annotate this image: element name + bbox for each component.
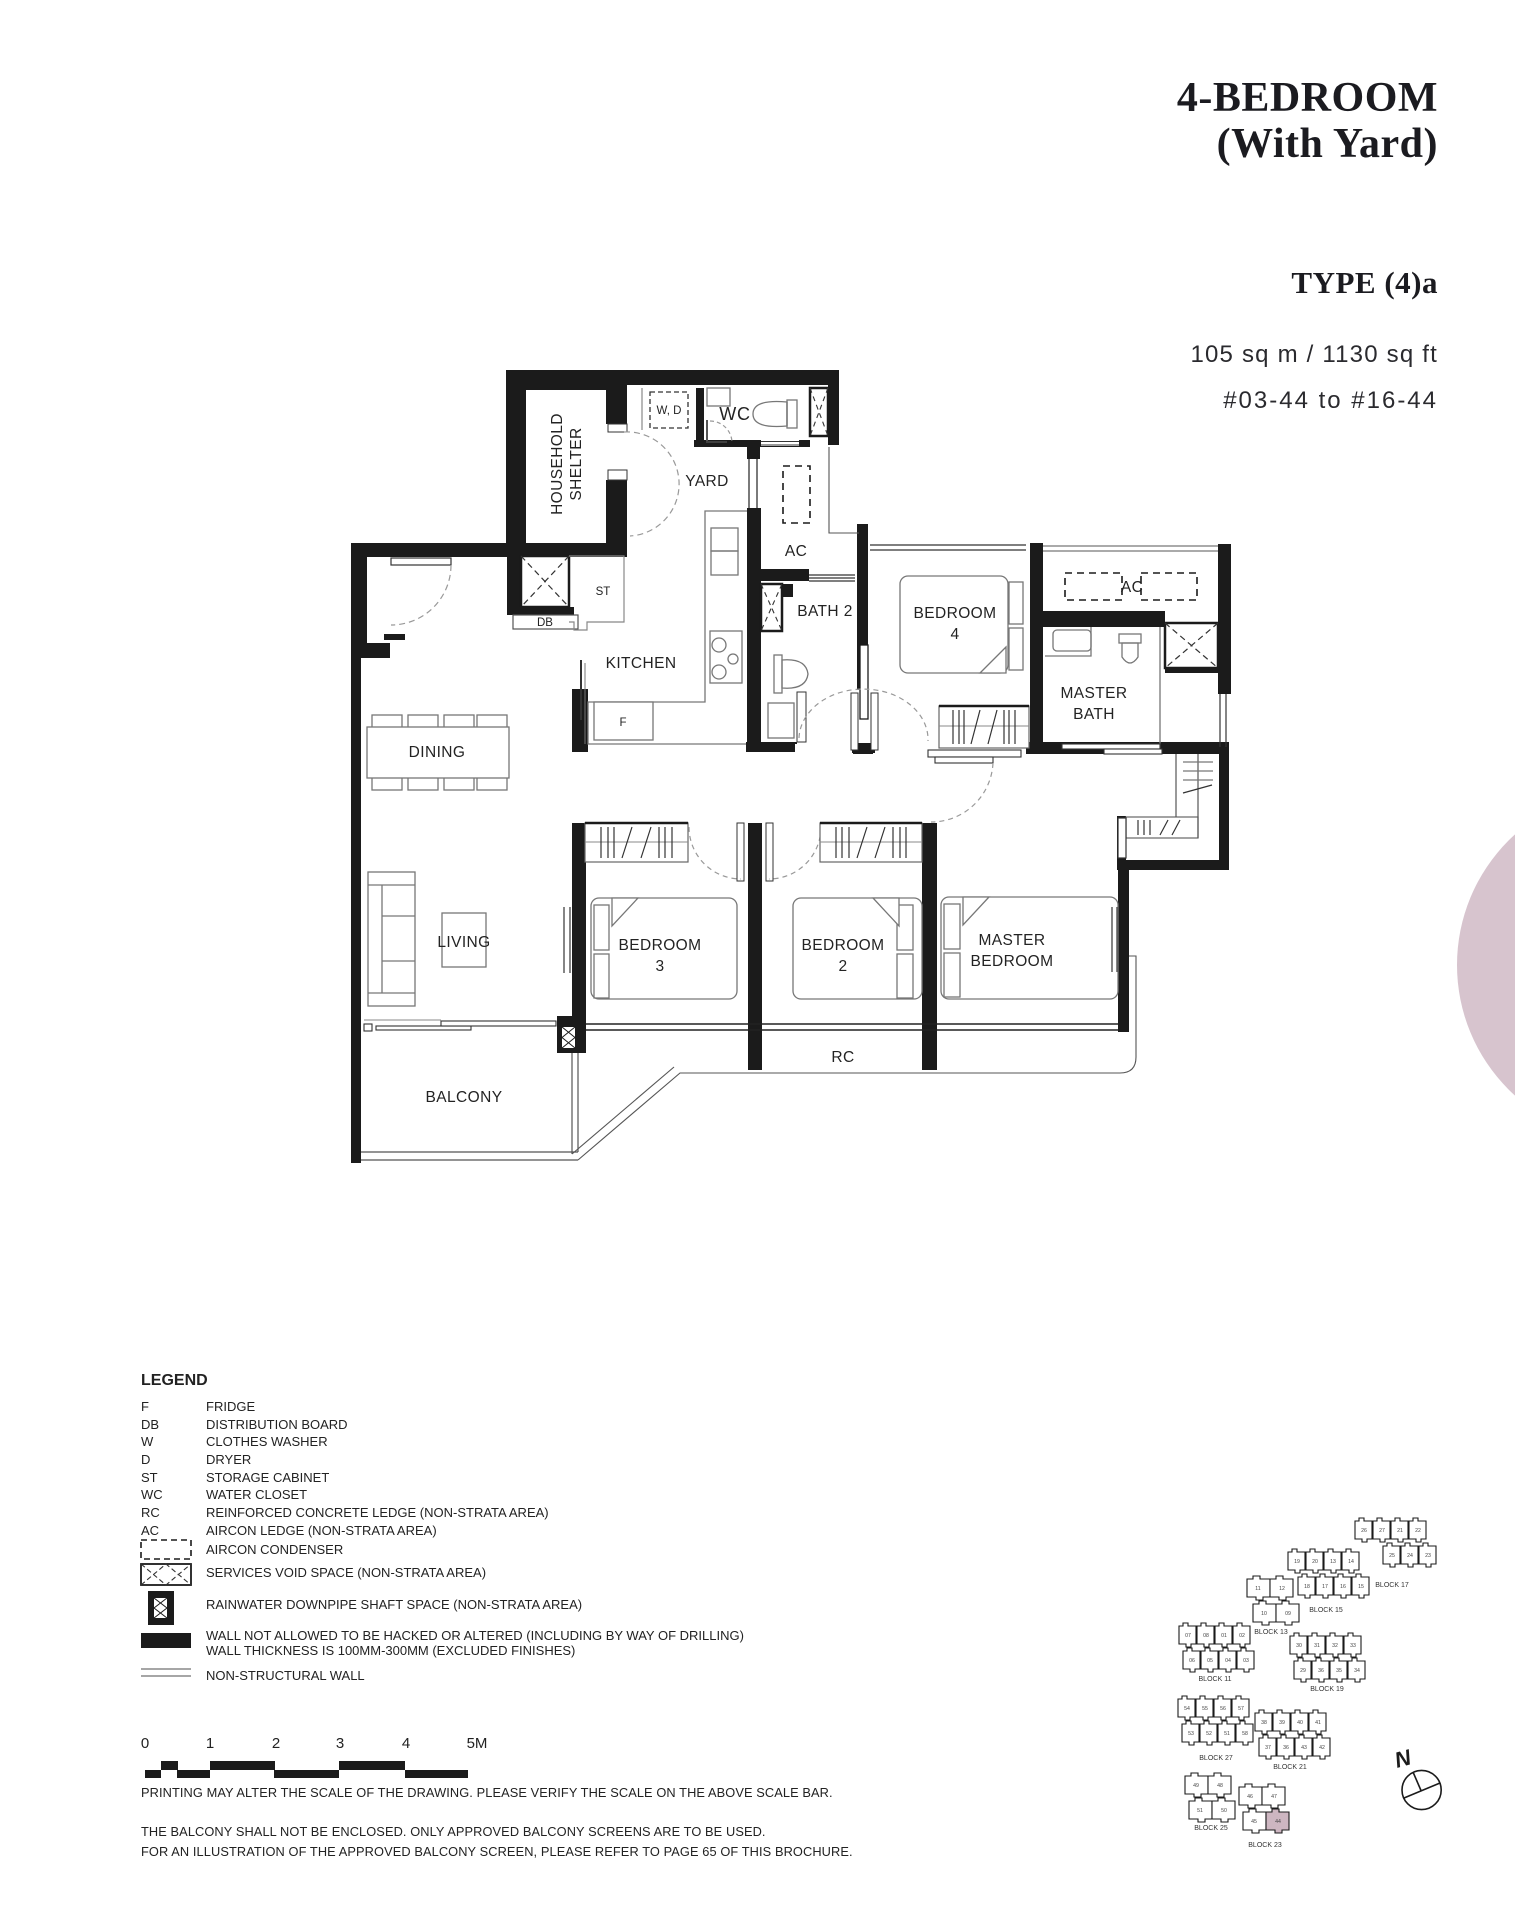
svg-text:BLOCK 21: BLOCK 21 — [1273, 1764, 1307, 1771]
svg-text:42: 42 — [1319, 1745, 1325, 1751]
svg-text:DB: DB — [537, 617, 553, 629]
svg-text:BLOCK 15: BLOCK 15 — [1309, 1607, 1343, 1614]
svg-text:58: 58 — [1242, 1731, 1248, 1737]
svg-text:14: 14 — [1348, 1559, 1354, 1565]
svg-text:MASTERBATH: MASTERBATH — [1061, 685, 1128, 723]
svg-text:BLOCK 27: BLOCK 27 — [1199, 1755, 1233, 1762]
svg-text:BEDROOM2: BEDROOM2 — [802, 937, 885, 975]
svg-text:WC: WC — [719, 404, 751, 424]
svg-text:F: F — [619, 717, 626, 729]
svg-text:31: 31 — [1314, 1643, 1320, 1649]
svg-text:36: 36 — [1318, 1668, 1324, 1674]
svg-text:RC: RC — [831, 1049, 854, 1066]
svg-text:17: 17 — [1322, 1584, 1328, 1590]
svg-text:05: 05 — [1207, 1658, 1213, 1664]
svg-text:4: 4 — [402, 1735, 410, 1752]
svg-text:15: 15 — [1358, 1584, 1364, 1590]
svg-text:36: 36 — [1283, 1745, 1289, 1751]
svg-text:BLOCK 11: BLOCK 11 — [1199, 1676, 1232, 1683]
svg-text:0: 0 — [141, 1735, 149, 1752]
svg-text:BATH 2: BATH 2 — [797, 603, 853, 620]
svg-text:3: 3 — [336, 1735, 344, 1752]
svg-text:YARD: YARD — [685, 473, 729, 490]
svg-text:49: 49 — [1193, 1783, 1199, 1789]
svg-text:56: 56 — [1220, 1706, 1226, 1712]
svg-text:AC: AC — [1121, 579, 1143, 596]
svg-text:AC: AC — [785, 543, 807, 560]
svg-text:20: 20 — [1312, 1559, 1318, 1565]
svg-text:30: 30 — [1296, 1643, 1302, 1649]
svg-text:27: 27 — [1379, 1528, 1385, 1534]
svg-text:52: 52 — [1206, 1731, 1212, 1737]
svg-text:LIVING: LIVING — [437, 934, 490, 951]
svg-text:BLOCK 23: BLOCK 23 — [1248, 1842, 1282, 1849]
svg-text:2: 2 — [272, 1735, 280, 1752]
svg-text:09: 09 — [1285, 1611, 1291, 1617]
svg-text:18: 18 — [1304, 1584, 1310, 1590]
svg-text:38: 38 — [1261, 1720, 1267, 1726]
svg-text:N: N — [1392, 1744, 1415, 1773]
svg-text:BEDROOM4: BEDROOM4 — [914, 605, 997, 643]
svg-text:BLOCK 25: BLOCK 25 — [1194, 1825, 1228, 1832]
svg-text:BLOCK 13: BLOCK 13 — [1254, 1629, 1288, 1636]
svg-text:43: 43 — [1301, 1745, 1307, 1751]
svg-text:23: 23 — [1425, 1553, 1431, 1559]
svg-text:40: 40 — [1297, 1720, 1303, 1726]
svg-text:57: 57 — [1238, 1706, 1244, 1712]
svg-text:26: 26 — [1361, 1528, 1367, 1534]
svg-text:19: 19 — [1294, 1559, 1300, 1565]
svg-text:13: 13 — [1330, 1559, 1336, 1565]
svg-text:21: 21 — [1397, 1528, 1403, 1534]
svg-text:22: 22 — [1415, 1528, 1421, 1534]
svg-text:24: 24 — [1407, 1553, 1413, 1559]
svg-text:02: 02 — [1239, 1633, 1245, 1639]
svg-text:04: 04 — [1225, 1658, 1231, 1664]
svg-text:06: 06 — [1189, 1658, 1195, 1664]
svg-text:08: 08 — [1203, 1633, 1209, 1639]
svg-text:48: 48 — [1217, 1783, 1223, 1789]
svg-text:53: 53 — [1188, 1731, 1194, 1737]
svg-text:10: 10 — [1261, 1611, 1267, 1617]
svg-text:37: 37 — [1265, 1745, 1271, 1751]
svg-text:DINING: DINING — [409, 744, 466, 761]
svg-text:45: 45 — [1251, 1819, 1257, 1825]
svg-text:1: 1 — [206, 1735, 214, 1752]
svg-text:W, D: W, D — [657, 405, 682, 417]
svg-text:32: 32 — [1332, 1643, 1338, 1649]
svg-text:33: 33 — [1350, 1643, 1356, 1649]
svg-text:MASTERBEDROOM: MASTERBEDROOM — [971, 932, 1054, 970]
svg-text:01: 01 — [1221, 1633, 1227, 1639]
svg-text:25: 25 — [1389, 1553, 1395, 1559]
svg-text:BLOCK 17: BLOCK 17 — [1375, 1582, 1409, 1589]
svg-text:47: 47 — [1271, 1794, 1277, 1800]
svg-text:51: 51 — [1197, 1808, 1203, 1814]
svg-text:BLOCK 19: BLOCK 19 — [1310, 1686, 1344, 1693]
svg-text:41: 41 — [1315, 1720, 1321, 1726]
svg-text:BEDROOM3: BEDROOM3 — [619, 937, 702, 975]
svg-text:16: 16 — [1340, 1584, 1346, 1590]
svg-text:03: 03 — [1243, 1658, 1249, 1664]
svg-text:50: 50 — [1221, 1808, 1227, 1814]
svg-text:35: 35 — [1336, 1668, 1342, 1674]
svg-text:BALCONY: BALCONY — [426, 1089, 503, 1106]
svg-text:KITCHEN: KITCHEN — [606, 655, 677, 672]
svg-text:46: 46 — [1247, 1794, 1253, 1800]
svg-text:29: 29 — [1300, 1668, 1306, 1674]
svg-text:54: 54 — [1184, 1706, 1190, 1712]
svg-text:5M: 5M — [467, 1735, 488, 1752]
svg-text:55: 55 — [1202, 1706, 1208, 1712]
svg-text:34: 34 — [1354, 1668, 1360, 1674]
svg-text:51: 51 — [1224, 1731, 1230, 1737]
svg-text:07: 07 — [1185, 1633, 1191, 1639]
svg-text:39: 39 — [1279, 1720, 1285, 1726]
svg-text:ST: ST — [596, 586, 611, 598]
svg-text:11: 11 — [1255, 1586, 1260, 1592]
svg-text:HOUSEHOLDSHELTER: HOUSEHOLDSHELTER — [549, 413, 585, 515]
svg-text:12: 12 — [1279, 1586, 1285, 1592]
svg-text:44: 44 — [1275, 1819, 1281, 1825]
